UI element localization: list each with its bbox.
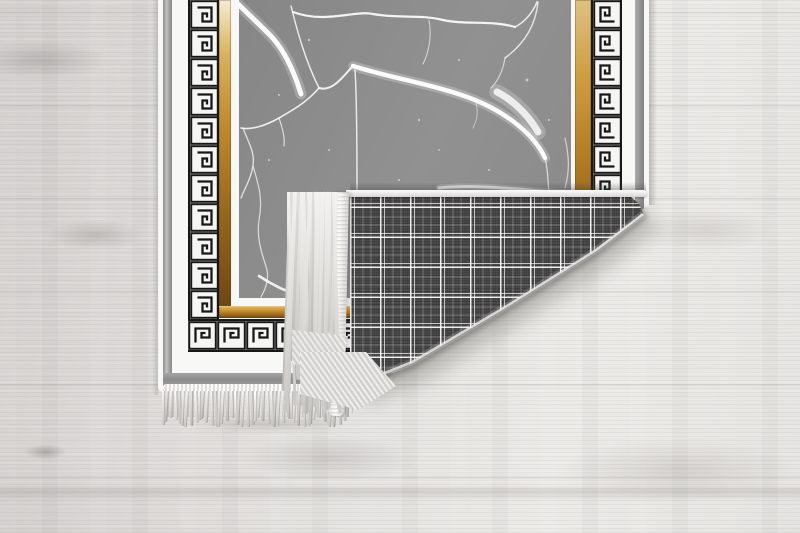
fringe-tassel (190, 391, 193, 426)
fringe-tassel (226, 391, 229, 421)
greek-key-tile (593, 87, 622, 116)
greek-key-tile (190, 261, 219, 290)
fringe-tassel (256, 391, 261, 418)
fringe-tassel (164, 391, 169, 423)
outer-gray-band-left (163, 0, 172, 392)
greek-key-tile (190, 116, 219, 145)
greek-key-tile (188, 321, 217, 350)
greek-key-tile (190, 0, 219, 29)
fringe-tassel (169, 391, 173, 418)
greek-key-tile (593, 58, 622, 87)
fringe-tassel (220, 391, 225, 424)
greek-key-tile (190, 290, 219, 319)
greek-key-tile (190, 145, 219, 174)
greek-key-tile (217, 321, 246, 350)
greek-key-tile (593, 145, 622, 174)
fringe-tassel (184, 391, 189, 427)
rug-right-shadow (649, 0, 657, 205)
greek-key-tile (593, 29, 622, 58)
greek-key-tile (593, 116, 622, 145)
fringe-tassel (261, 391, 265, 421)
greek-key-border-left (188, 0, 219, 319)
greek-key-tile (190, 87, 219, 116)
fringe-tassel (240, 391, 245, 427)
greek-key-tile (246, 321, 275, 350)
greek-key-tile (190, 232, 219, 261)
gold-band-left (219, 0, 231, 307)
greek-key-tile (190, 203, 219, 232)
fringe-tassel (205, 391, 209, 423)
greek-key-tile (190, 174, 219, 203)
fringe-tassel (276, 391, 281, 426)
greek-key-tile (593, 0, 622, 29)
greek-key-tile (190, 58, 219, 87)
rug-left-shadow (152, 0, 158, 395)
fold-top-selvage (346, 190, 647, 197)
greek-key-tile (190, 29, 219, 58)
